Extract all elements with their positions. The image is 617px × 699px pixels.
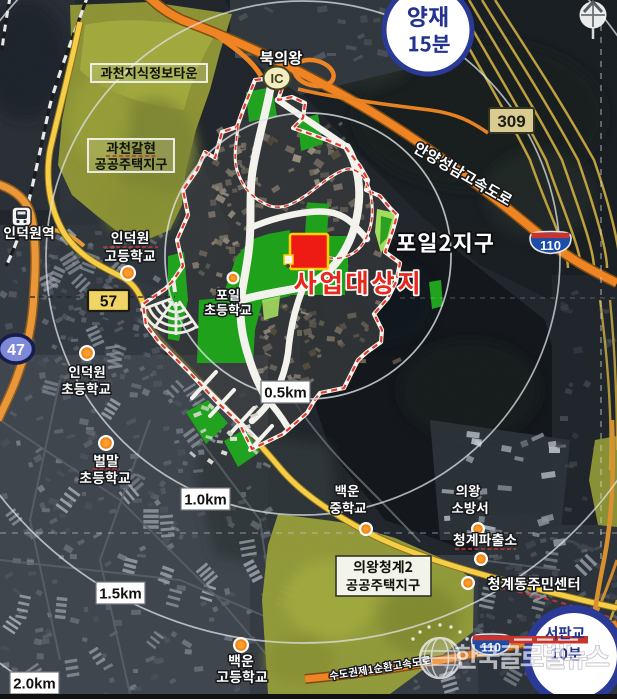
- svg-text:1.0km: 1.0km: [184, 492, 227, 509]
- svg-text:47: 47: [7, 342, 25, 359]
- svg-text:0.5km: 0.5km: [264, 385, 307, 402]
- svg-text:57: 57: [100, 294, 117, 311]
- svg-text:1.5km: 1.5km: [99, 586, 142, 603]
- svg-text:2.0km: 2.0km: [13, 676, 56, 693]
- svg-text:309: 309: [497, 112, 525, 131]
- svg-text:IC: IC: [271, 71, 285, 86]
- svg-text:110: 110: [540, 238, 561, 253]
